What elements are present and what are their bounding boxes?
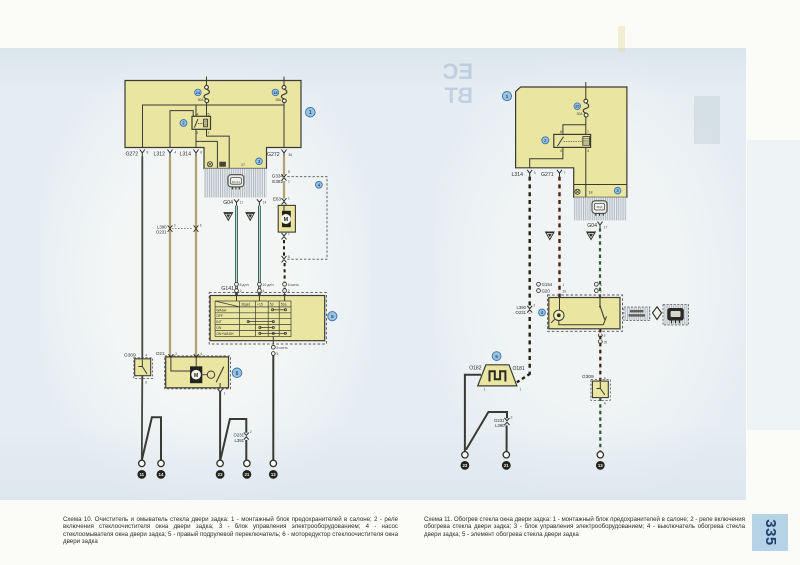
svg-text:МС34: МС34 [232,180,240,184]
svg-text:6 кисть: 6 кисть [288,283,299,287]
svg-text:30дв1: 30дв1 [241,303,251,307]
svg-text:1: 1 [208,131,210,135]
svg-text:6: 6 [200,223,202,227]
svg-text:8: 8 [560,130,562,134]
svg-text:L391: L391 [234,438,244,443]
svg-text:G271: G271 [541,172,554,178]
svg-text:8: 8 [600,283,602,287]
svg-text:30A: 30A [577,112,584,116]
svg-text:3: 3 [533,304,535,308]
svg-text:6: 6 [145,381,147,385]
svg-text:6: 6 [600,289,602,293]
svg-text:5: 5 [208,113,210,117]
svg-text:8 дл/ч: 8 дл/ч [240,283,250,287]
svg-text:2: 2 [511,415,513,419]
svg-text:5: 5 [331,314,334,320]
svg-text:E382: E382 [272,179,283,184]
svg-text:G272: G272 [126,151,139,157]
svg-text:14: 14 [263,201,267,205]
svg-text:+15: +15 [257,303,263,307]
svg-text:1: 1 [288,232,290,236]
svg-text:8: 8 [147,151,149,155]
svg-text:G20: G20 [542,289,551,294]
svg-text:G334: G334 [272,173,284,178]
svg-text:36: 36 [288,153,292,157]
svg-text:1: 1 [520,388,522,392]
svg-text:O231: O231 [515,310,526,315]
svg-text:2: 2 [240,289,242,293]
svg-text:10 дл/ч: 10 дл/ч [263,283,275,287]
svg-text:L314: L314 [180,151,192,157]
svg-text:4: 4 [197,113,199,117]
svg-text:5: 5 [534,171,536,175]
svg-text:OFF: OFF [216,314,223,318]
svg-text:18: 18 [589,191,593,195]
svg-text:1: 1 [563,283,565,287]
svg-text:15A: 15A [275,98,282,102]
svg-text:7: 7 [587,130,589,134]
svg-text:ВСД: ВСД [597,205,603,209]
svg-text:11: 11 [240,201,244,205]
svg-text:21: 21 [504,463,509,468]
svg-text:13: 13 [271,472,276,477]
svg-text:WASH: WASH [216,308,227,312]
svg-text:6: 6 [200,151,202,155]
svg-text:4: 4 [263,289,265,293]
svg-text:G154: G154 [542,282,553,287]
svg-text:53а: 53а [281,303,287,307]
svg-text:O231: O231 [156,230,167,235]
svg-text:A: A [604,376,607,380]
svg-text:M: M [284,217,289,223]
svg-text:30A: 30A [198,98,205,102]
svg-text:3: 3 [174,223,176,227]
svg-text:21: 21 [244,472,249,477]
svg-text:4: 4 [560,149,562,153]
svg-text:17: 17 [241,163,245,167]
svg-text:M: M [194,373,198,379]
svg-text:53: 53 [270,303,274,307]
svg-text:E63: E63 [273,196,282,201]
svg-text:1: 1 [484,388,486,392]
svg-text:7: 7 [564,171,566,175]
svg-text:6: 6 [236,371,239,377]
svg-text:L390: L390 [495,423,505,428]
svg-text:A: A [604,401,607,405]
svg-text:4: 4 [145,353,147,357]
svg-text:25: 25 [575,104,580,109]
svg-text:2: 2 [250,430,252,434]
svg-text:ON+WASH: ON+WASH [216,332,234,336]
svg-text:O182: O182 [469,366,481,372]
svg-text:L314: L314 [512,172,524,178]
svg-text:23: 23 [462,463,467,468]
svg-text:17: 17 [604,226,608,230]
svg-text:O181: O181 [513,366,525,372]
svg-text:9: 9 [604,334,606,338]
svg-text:1: 1 [224,392,226,396]
svg-text:13: 13 [598,463,603,468]
svg-text:G141: G141 [221,286,234,292]
svg-text:22: 22 [218,472,223,477]
svg-text:8 кисть: 8 кисть [277,346,288,350]
svg-text:29: 29 [604,340,608,344]
svg-text:1: 1 [309,110,312,116]
svg-text:1: 1 [506,94,509,100]
svg-text:29: 29 [563,289,567,293]
svg-text:L312: L312 [154,151,166,157]
svg-text:5: 5 [495,354,498,360]
svg-text:8: 8 [288,255,290,259]
svg-text:1: 1 [288,179,290,183]
svg-text:1: 1 [288,196,290,200]
svg-text:G04: G04 [223,200,233,206]
svg-text:G04: G04 [587,223,597,229]
svg-text:18: 18 [273,90,278,95]
svg-text:24: 24 [196,90,201,95]
svg-text:4: 4 [174,151,176,155]
svg-text:14: 14 [159,472,164,477]
svg-text:3: 3 [587,149,589,153]
svg-text:5: 5 [277,352,279,356]
svg-text:11: 11 [139,472,144,477]
svg-text:8: 8 [288,170,290,174]
svg-text:G272: G272 [267,152,280,158]
svg-text:INT: INT [216,320,221,324]
svg-text:ON: ON [216,326,222,330]
svg-text:4: 4 [200,352,202,356]
svg-text:O21: O21 [156,351,165,356]
svg-text:3: 3 [175,352,177,356]
